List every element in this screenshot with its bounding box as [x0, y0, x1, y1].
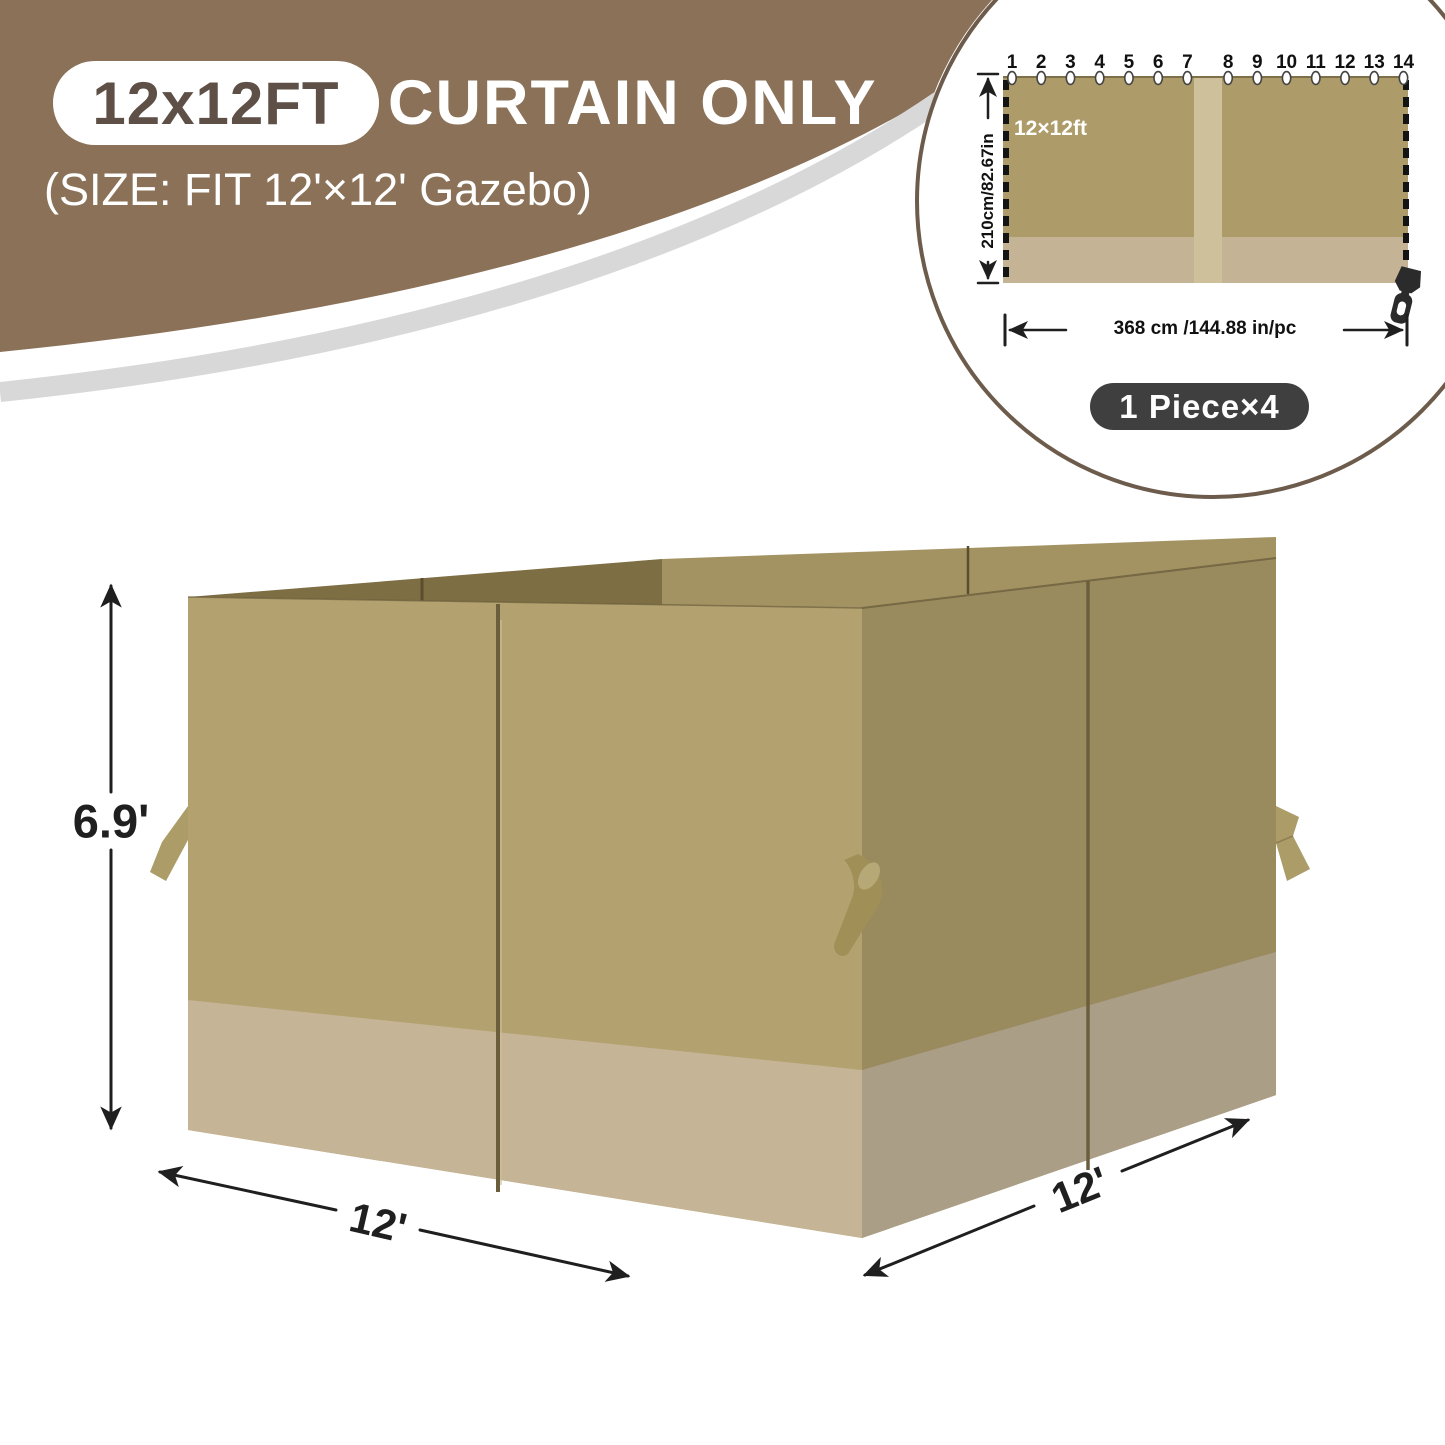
grommet-number: 14 [1393, 52, 1414, 74]
grommet-number: 10 [1276, 52, 1297, 74]
tie-strap-left [150, 806, 188, 881]
grommet-number: 11 [1306, 52, 1326, 74]
grommet-number: 8 [1223, 52, 1234, 74]
curtain-height-dimension-label: 210cm/82.67in [978, 129, 998, 252]
pieces-badge: 1 Piece×4 [1090, 383, 1309, 430]
grommet-number: 5 [1124, 52, 1135, 74]
gazebo-height-label: 6.9' [73, 794, 150, 849]
pieces-badge-label: 1 Piece×4 [1119, 388, 1279, 426]
curtain-panel-size-label: 12×12ft [1014, 117, 1087, 141]
gazebo-3d-view [111, 537, 1310, 1276]
grommet-number: 7 [1182, 52, 1193, 74]
grommet-number: 4 [1094, 52, 1105, 74]
grommet-number: 3 [1065, 52, 1076, 74]
grommet-number: 13 [1364, 52, 1385, 74]
curtain-width-dimension-label: 368 cm /144.88 in/pc [1114, 318, 1297, 340]
grommet-number: 12 [1334, 52, 1355, 74]
size-badge: 12x12FT [53, 61, 379, 145]
size-badge-label: 12x12FT [92, 69, 339, 138]
grommet-number: 6 [1153, 52, 1164, 74]
page-title: CURTAIN ONLY [388, 70, 878, 136]
infographic-artwork [0, 0, 1445, 1445]
product-infographic: 12x12FT CURTAIN ONLY (SIZE: FIT 12'×12' … [0, 0, 1445, 1445]
grommet-number: 9 [1252, 52, 1263, 74]
tie-strap-right [1276, 806, 1310, 881]
grommet-number: 2 [1036, 52, 1047, 74]
page-subtitle: (SIZE: FIT 12'×12' Gazebo) [44, 164, 592, 216]
grommet-number: 1 [1007, 52, 1018, 74]
